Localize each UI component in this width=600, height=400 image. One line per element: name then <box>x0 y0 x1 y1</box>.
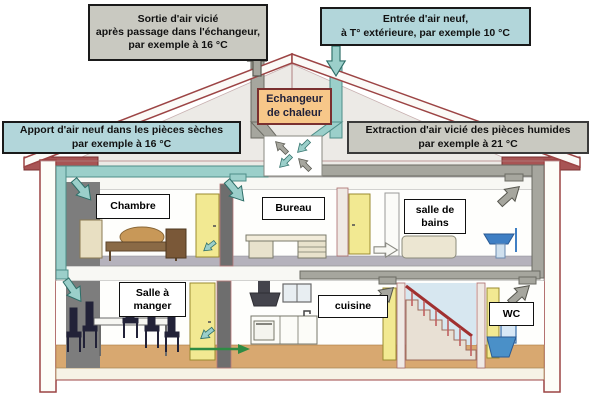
extract-vent-bathroom <box>505 174 523 181</box>
upper-ceiling-slab <box>56 177 544 190</box>
desk-drawers <box>298 241 326 258</box>
range-hood-chimney <box>258 281 270 293</box>
room-label-chambre: Chambre <box>96 194 170 219</box>
partition-bureau-hall <box>337 188 348 256</box>
partition-stairs-wc <box>477 283 485 368</box>
range-hood <box>250 293 280 306</box>
extract-duct-ground <box>300 271 540 279</box>
desk-top <box>246 235 326 241</box>
supply-duct-vertical <box>56 166 66 270</box>
heat-exchanger-unit <box>264 136 322 176</box>
sink-pedestal <box>496 244 505 258</box>
room-label-bureau: Bureau <box>262 197 325 220</box>
callout-exhaust-outlet: Sortie d'air vicié après passage dans l'… <box>88 4 268 61</box>
callout-fresh-air-intake: Entrée d'air neuf, à T° extérieure, par … <box>320 7 531 46</box>
supply-duct-ground-elbow <box>56 270 68 279</box>
callout-heat-exchanger: Echangeur de chaleur <box>257 88 332 125</box>
extract-duct-vertical <box>532 165 544 278</box>
wardrobe <box>80 220 102 258</box>
bathtub <box>402 236 456 258</box>
supply-vent-bureau <box>230 174 246 181</box>
house-ventilation-diagram: Sortie d'air vicié après passage dans l'… <box>0 0 600 400</box>
callout-extract-humid-rooms: Extraction d'air vicié des pièces humide… <box>347 121 589 154</box>
room-label-cuisine: cuisine <box>318 295 388 318</box>
extract-vent-wc <box>519 277 536 284</box>
extract-vent-kitchen <box>379 277 396 284</box>
room-label-wc: WC <box>489 302 534 326</box>
desk-pedestal <box>249 241 273 258</box>
room-label-salle-a-manger: Salle à manger <box>119 282 186 317</box>
room-label-salle-de-bains: salle de bains <box>404 199 466 234</box>
nightstand <box>166 229 186 258</box>
callout-supply-dry-rooms: Apport d'air neuf dans les pièces sèches… <box>2 121 241 154</box>
left-wall <box>40 160 56 392</box>
hall-door <box>349 194 370 254</box>
partition-dining-kitchen <box>217 281 231 368</box>
right-wall <box>544 160 560 392</box>
partition-kitchen-stairs <box>397 283 405 368</box>
bottom-slab <box>56 368 544 380</box>
